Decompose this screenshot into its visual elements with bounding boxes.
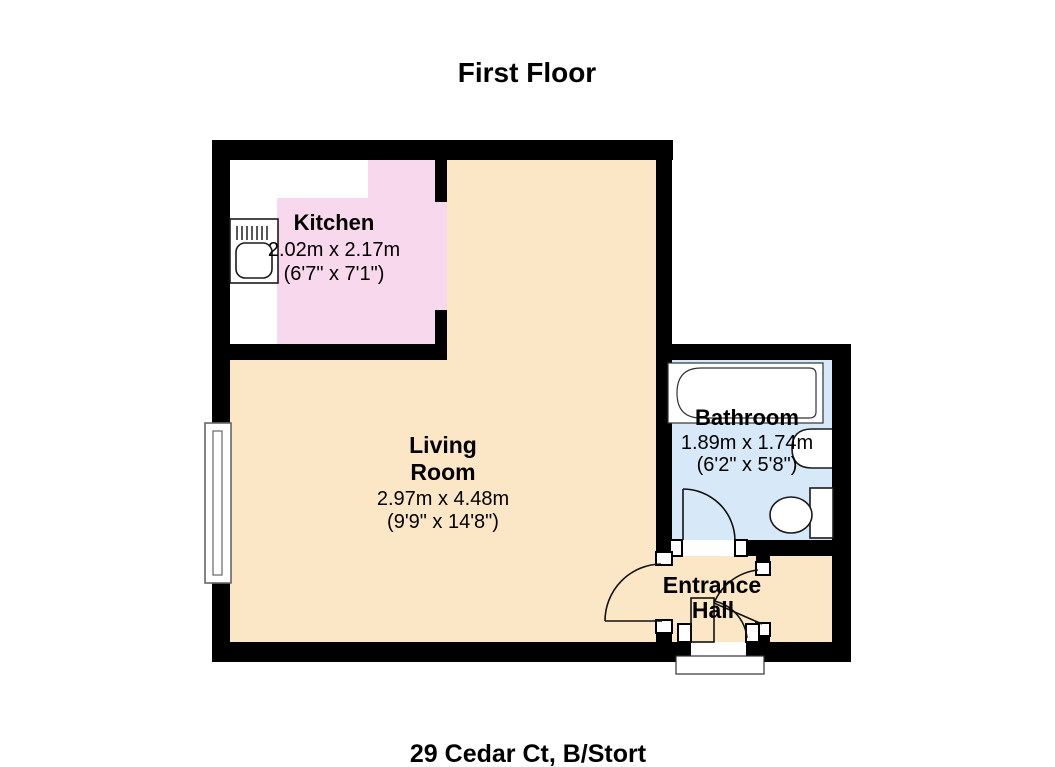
kitchen-size-imperial: (6'7" x 7'1") [284,263,385,285]
front-door-jamb-left [678,624,691,642]
living-room-size-metric: 2.97m x 4.48m [377,488,509,510]
front-door-sill [676,656,764,674]
bathroom-door-jamb-right [735,540,747,556]
living-room-label-2: Room [410,459,475,485]
wall-right [832,344,851,662]
wall-kitchen-stub-bottom [435,310,447,344]
wall-bathroom-top [656,344,851,360]
cupboard-floor [770,556,832,642]
living-room-label-1: Living [409,432,477,458]
hall-door-jamb-top [656,552,672,565]
bathroom-label: Bathroom [695,405,799,430]
entrance-hall-label-1: Entrance [663,572,761,598]
bathroom-size-imperial: (6'2" x 5'8") [697,454,798,476]
wall-living-right [656,158,672,344]
sink-basin [236,243,272,278]
page-title: First Floor [458,57,597,88]
kitchen-label: Kitchen [294,210,375,235]
bathroom-size-metric: 1.89m x 1.74m [681,432,813,454]
toilet-bowl [770,497,812,533]
entrance-hall-label-2: Hall [692,597,734,623]
kitchen-door-opening [435,202,447,310]
bathroom-door-opening [682,540,735,556]
living-room-size-imperial: (9'9" x 14'8") [387,511,499,533]
toilet-cistern [810,488,833,538]
floor-plan-page: First Floor Kitchen 2.02m x 2.17m (6'7" … [0,0,1055,767]
window-icon [205,423,231,583]
window-glazing [213,431,222,575]
address-caption: 29 Cedar Ct, B/Stort [410,740,647,767]
wall-bathroom-bottom-right [747,540,832,556]
sink-drainer-lines [237,226,267,240]
wall-kitchen-stub-top [435,158,447,202]
front-door-jamb-right [746,624,759,642]
hall-door-jamb-bottom [656,620,672,633]
floor-plan: First Floor Kitchen 2.02m x 2.17m (6'7" … [0,0,1055,767]
wall-top [212,140,673,160]
wall-kitchen-bottom [212,344,447,360]
kitchen-size-metric: 2.02m x 2.17m [268,239,400,261]
